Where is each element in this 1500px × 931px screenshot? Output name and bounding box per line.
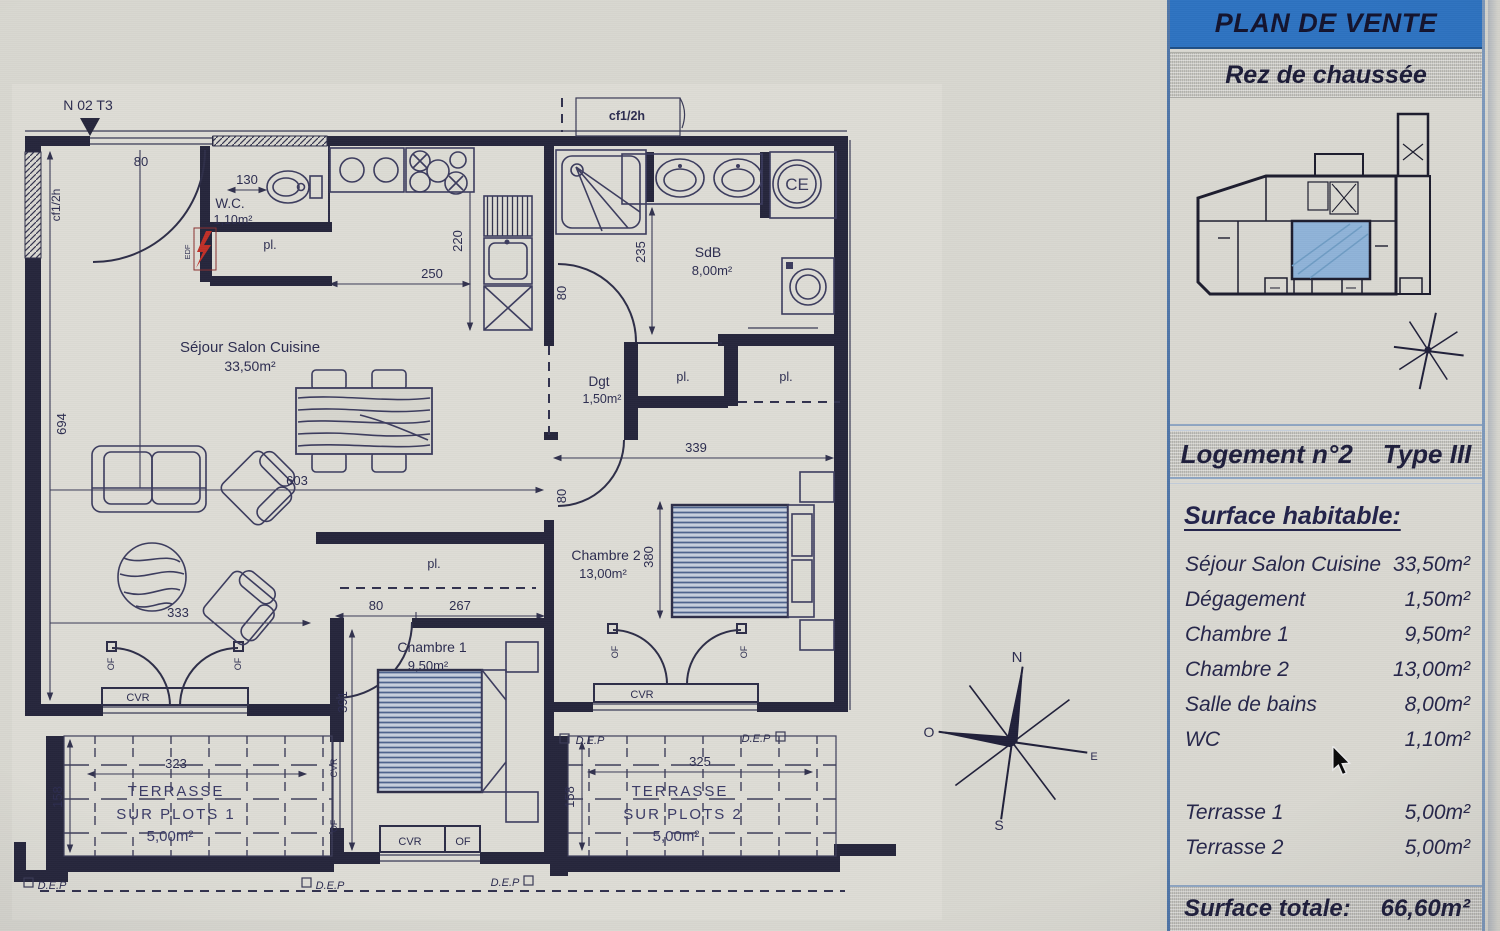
surface-row: Séjour Salon Cuisine 33,50m² [1170, 547, 1482, 582]
svg-text:OF: OF [329, 819, 339, 832]
t1-line1: TERRASSE [128, 783, 225, 800]
surface-rows: Séjour Salon Cuisine 33,50m² Dégagement … [1170, 547, 1482, 757]
floor-band: Rez de chaussée [1170, 52, 1482, 98]
svg-text:OF: OF [739, 645, 749, 658]
svg-text:250: 250 [421, 266, 443, 281]
key-plan-drawing [1170, 98, 1488, 424]
t2-area: 5,00m² [653, 828, 700, 845]
svg-text:130: 130 [236, 172, 258, 187]
divider [1170, 477, 1482, 484]
svg-text:380: 380 [641, 546, 656, 568]
surface-row: Dégagement 1,50m² [1170, 582, 1482, 617]
surface-row: WC 1,10m² [1170, 722, 1482, 757]
surface-row: Chambre 2 13,00m² [1170, 652, 1482, 687]
kitchen-sink [330, 148, 404, 192]
sdb-area: 8,00m² [692, 263, 733, 278]
unit-marker-label: N 02 T3 [63, 97, 113, 113]
total-value: 66,60m² [1381, 895, 1470, 923]
svg-text:339: 339 [685, 440, 707, 455]
t2-line2: SUR PLOTS 2 [623, 806, 743, 823]
key-plan [1170, 98, 1482, 424]
svg-text:80: 80 [554, 489, 569, 503]
svg-text:OF: OF [233, 657, 243, 670]
compass-n: N [1012, 649, 1023, 666]
compass-s: S [994, 817, 1003, 833]
cf-left-label: cf1/2h [49, 189, 63, 222]
svg-text:267: 267 [449, 598, 471, 613]
svg-text:80: 80 [134, 154, 148, 169]
panel-shadow [1488, 0, 1498, 931]
svg-text:235: 235 [633, 241, 648, 263]
sdb-name: SdB [695, 244, 721, 260]
stove [406, 148, 474, 194]
svg-text:pl.: pl. [676, 370, 689, 384]
floor-label: Rez de chaussée [1225, 61, 1427, 90]
divider [1170, 424, 1482, 431]
terrace-rows: Terrasse 1 5,00m² Terrasse 2 5,00m² [1170, 795, 1482, 865]
dgt-name: Dgt [588, 374, 609, 389]
svg-text:220: 220 [450, 230, 465, 252]
wc-area: 1,10m² [214, 213, 253, 227]
edf-label: EDF [183, 244, 192, 259]
surface-row: Terrasse 1 5,00m² [1170, 795, 1482, 830]
svg-text:323: 323 [165, 756, 187, 771]
ch1-area: 9,50m² [408, 658, 449, 673]
svg-text:OF: OF [455, 836, 471, 848]
dgt-area: 1,50m² [583, 392, 622, 406]
svg-text:333: 333 [167, 605, 189, 620]
surface-row: Salle de bains 8,00m² [1170, 687, 1482, 722]
ch2-area: 13,00m² [579, 566, 627, 581]
svg-text:603: 603 [286, 473, 308, 488]
sales-info-panel: PLAN DE VENTE Rez de chaussée [1167, 0, 1485, 931]
svg-text:325: 325 [689, 754, 711, 769]
unit-number: Logement n°2 [1181, 439, 1353, 470]
sejour-area: 33,50m² [224, 358, 276, 374]
svg-text:pl.: pl. [263, 238, 276, 252]
svg-text:CVR: CVR [126, 692, 149, 704]
svg-text:D.E.P: D.E.P [742, 733, 771, 745]
svg-text:CVR: CVR [630, 689, 653, 701]
svg-text:D.E.P: D.E.P [38, 880, 67, 892]
svg-text:D.E.P: D.E.P [491, 877, 520, 889]
total-label: Surface totale: [1184, 895, 1351, 923]
key-plan-star [1386, 306, 1471, 397]
svg-text:OF: OF [610, 645, 620, 658]
svg-text:CVR: CVR [329, 758, 339, 778]
mouse-cursor [1331, 746, 1355, 778]
unit-type: Type III [1383, 439, 1472, 470]
total-band: Surface totale: 66,60m² [1170, 885, 1482, 931]
svg-text:CVR: CVR [398, 836, 421, 848]
svg-text:158: 158 [50, 786, 65, 808]
svg-text:D.E.P: D.E.P [316, 880, 345, 892]
svg-text:158: 158 [562, 786, 577, 808]
svg-text:pl.: pl. [427, 557, 440, 571]
svg-text:391: 391 [335, 691, 350, 713]
t2-line1: TERRASSE [632, 783, 729, 800]
panel-title-band: PLAN DE VENTE [1170, 0, 1482, 49]
svg-text:694: 694 [54, 413, 69, 435]
ch1-name: Chambre 1 [397, 639, 466, 655]
surface-section-title: Surface habitable: [1184, 502, 1482, 531]
svg-text:pl.: pl. [779, 370, 792, 384]
wc-name: W.C. [215, 196, 244, 211]
svg-text:80: 80 [369, 598, 383, 613]
surface-row: Terrasse 2 5,00m² [1170, 830, 1482, 865]
svg-text:OF: OF [106, 657, 116, 670]
cf-top-label: cf1/2h [609, 109, 645, 123]
ch2-name: Chambre 2 [571, 547, 640, 563]
compass-e: E [1090, 751, 1097, 763]
t1-area: 5,00m² [147, 828, 194, 845]
ce-label: CE [785, 175, 809, 194]
panel-title: PLAN DE VENTE [1215, 8, 1438, 39]
svg-text:80: 80 [554, 286, 569, 300]
unit-band: Logement n°2 Type III [1170, 431, 1482, 477]
svg-text:D.E.P: D.E.P [576, 735, 605, 747]
compass-o: O [924, 724, 935, 740]
t1-line2: SUR PLOTS 1 [116, 806, 236, 823]
sejour-name: Séjour Salon Cuisine [180, 339, 320, 356]
floorplan-drawing: N 02 T3 cf1/2h cf1/2h 80 130 W.C. 1,10m²… [0, 0, 1160, 931]
surface-row: Chambre 1 9,50m² [1170, 617, 1482, 652]
